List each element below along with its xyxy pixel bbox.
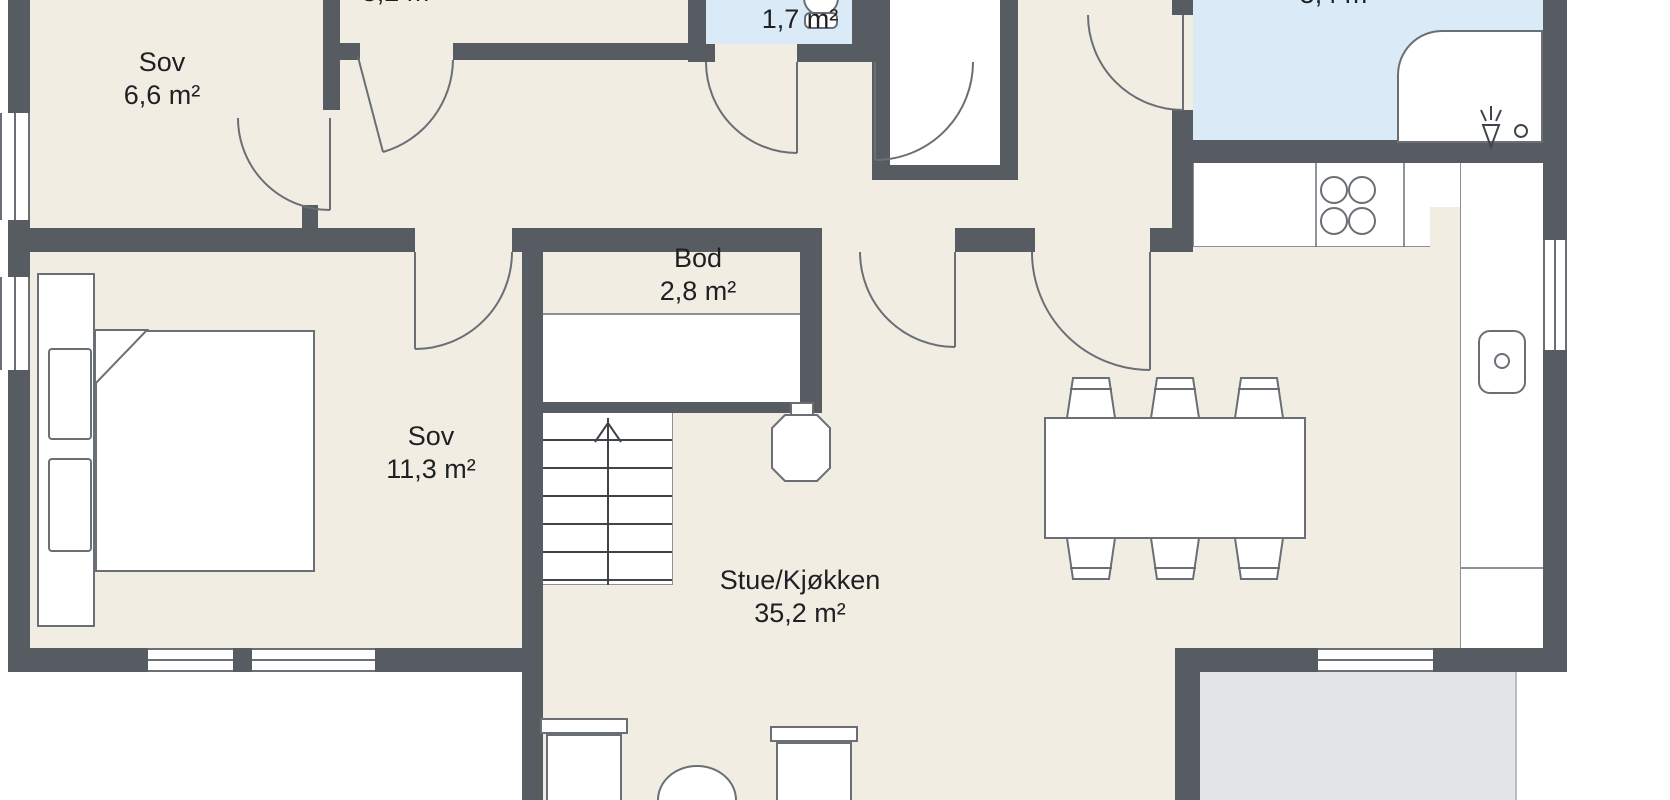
dining-chair bbox=[1151, 378, 1199, 418]
outside-bottom-left bbox=[0, 672, 522, 800]
door-top-room bbox=[358, 57, 453, 152]
door-sov2 bbox=[415, 252, 512, 349]
side-table-round bbox=[657, 765, 737, 800]
kitchen-counter-top bbox=[1193, 163, 1430, 247]
door-hall-living-1 bbox=[860, 252, 955, 347]
wall-terrace-west bbox=[1175, 672, 1200, 800]
shower-pan bbox=[1397, 30, 1543, 143]
armchair-left-back bbox=[540, 718, 628, 734]
door-wc bbox=[706, 62, 797, 153]
dining-table bbox=[1045, 418, 1305, 538]
dining-chair bbox=[1235, 538, 1283, 579]
room-label-top-partial: 3,2 m² bbox=[280, 0, 520, 9]
wall-sov1-east bbox=[323, 0, 340, 110]
door-sov1 bbox=[238, 118, 330, 210]
bod-shelf-unit bbox=[543, 313, 800, 404]
kitchen-counter-corner bbox=[1430, 163, 1460, 207]
wall-closet-east bbox=[1000, 0, 1018, 180]
window-right-kitchen bbox=[1543, 240, 1567, 350]
outside-bottom-right bbox=[1517, 672, 1567, 800]
water-heater-icon bbox=[772, 403, 830, 481]
wall-hall-living-divider-b bbox=[1150, 228, 1193, 252]
kitchen-counter-right bbox=[1460, 163, 1543, 648]
window-left-lower bbox=[0, 277, 30, 370]
dining-chair bbox=[1235, 378, 1283, 418]
wall-wc-south-nub-right bbox=[797, 44, 852, 62]
room-label-sov1: Sov6,6 m² bbox=[42, 46, 282, 112]
wall-bathroom-west-nub bbox=[1172, 0, 1193, 15]
closet-room-floor bbox=[890, 0, 1000, 165]
dining-chair bbox=[1151, 538, 1199, 579]
room-label-sov2: Sov11,3 m² bbox=[311, 420, 551, 486]
window-left-upper bbox=[0, 113, 30, 220]
terrace bbox=[1200, 672, 1517, 800]
wall-closet-south bbox=[872, 165, 1018, 180]
door-bathroom bbox=[1088, 15, 1183, 110]
wall-bod-south bbox=[543, 402, 822, 413]
room-label-bath-partial: 5,4 m² bbox=[1238, 0, 1438, 11]
door-hall-living-2 bbox=[1032, 252, 1150, 370]
room-label-bod: Bod2,8 m² bbox=[598, 242, 798, 308]
wall-doorjamb-stub bbox=[302, 205, 318, 228]
wall-bathroom-south bbox=[1193, 140, 1543, 163]
armchair-left-seat bbox=[546, 734, 622, 800]
kitchen-sink bbox=[1478, 330, 1526, 394]
floor-plan: Sov6,6 m² 3,2 m² 1,7 m² 5,4 m² Bod2,8 m²… bbox=[0, 0, 1670, 800]
wall-wc-south-nub-left bbox=[706, 44, 715, 62]
window-bottom-left-2 bbox=[252, 648, 375, 672]
wall-hall-sov2-divider-a bbox=[318, 228, 415, 252]
bed-pillow-bottom bbox=[48, 458, 92, 552]
armchair-right-back bbox=[770, 726, 858, 742]
counter-divider-line bbox=[1460, 567, 1543, 569]
room-label-stue: Stue/Kjøkken35,2 m² bbox=[640, 564, 960, 630]
window-terrace-door bbox=[1318, 648, 1433, 672]
wall-hall-sov1-divider bbox=[8, 228, 318, 252]
bed-frame bbox=[37, 273, 95, 627]
dining-chair bbox=[1067, 378, 1115, 418]
bed-mattress bbox=[95, 330, 315, 572]
wall-hall-sov2-divider-b bbox=[512, 228, 543, 252]
room-label-wc: 1,7 m² bbox=[700, 3, 900, 36]
wall-top-room-nub bbox=[340, 43, 360, 60]
wall-top-room-south bbox=[453, 43, 690, 60]
dining-chair bbox=[1067, 538, 1115, 579]
armchair-right-seat bbox=[776, 742, 852, 800]
wall-bod-east bbox=[800, 228, 822, 413]
bed-pillow-top bbox=[48, 348, 92, 440]
wall-hall-living-divider-a bbox=[955, 228, 1035, 252]
staircase-floor bbox=[543, 413, 673, 585]
wall-stairwell-west bbox=[522, 232, 543, 800]
outside-right bbox=[1567, 0, 1670, 800]
window-bottom-left-1 bbox=[148, 648, 233, 672]
